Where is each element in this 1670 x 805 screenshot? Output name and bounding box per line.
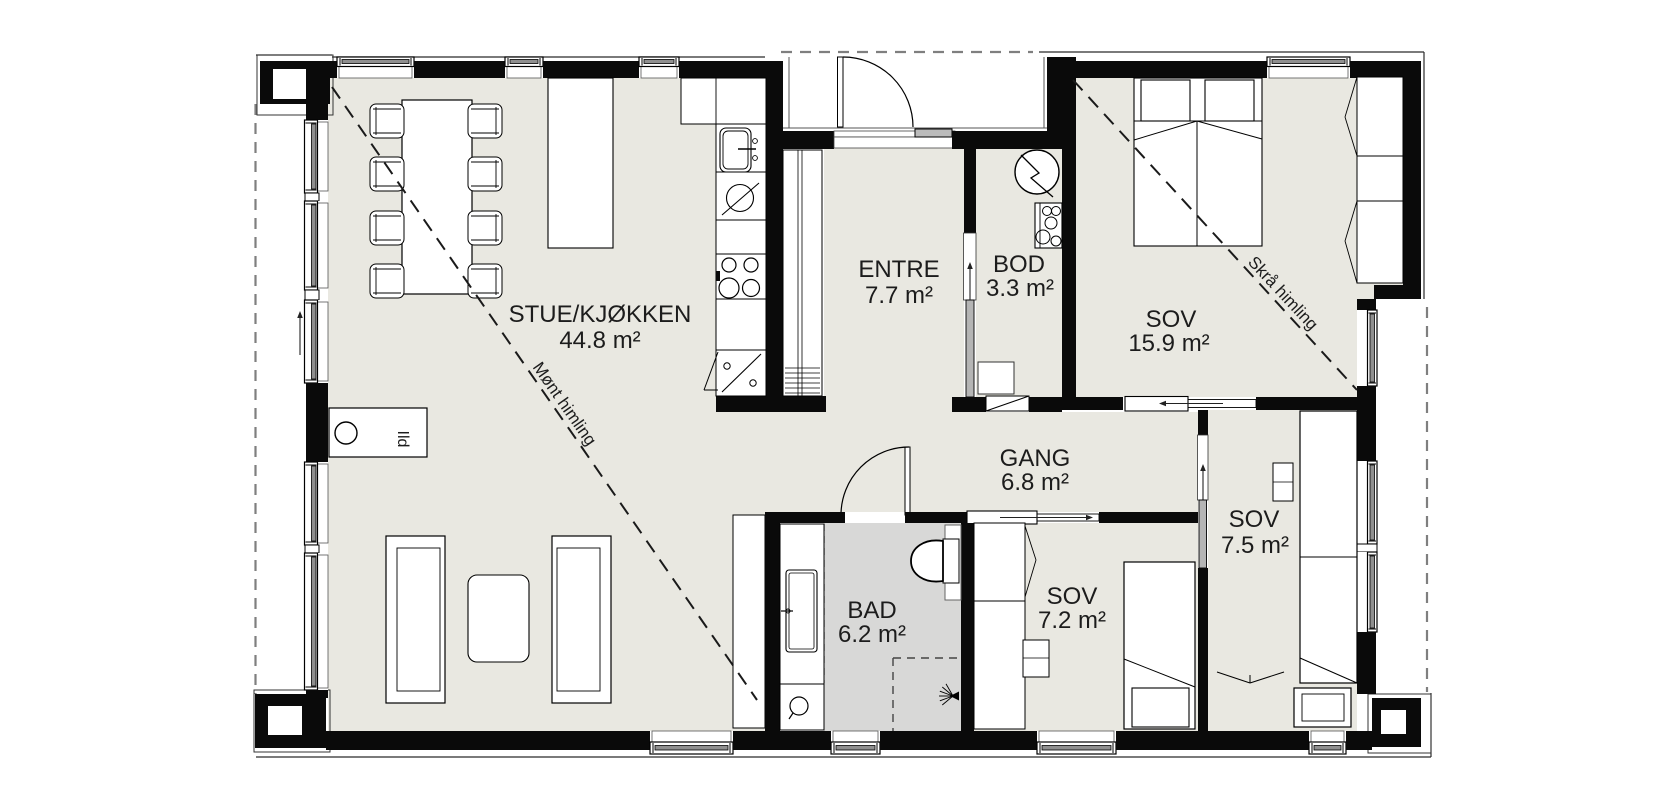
svg-text:Ild: Ild (394, 431, 411, 448)
svg-text:44.8 m²: 44.8 m² (559, 327, 640, 354)
svg-text:7.2 m²: 7.2 m² (1038, 607, 1106, 634)
svg-text:SOV: SOV (1047, 583, 1098, 610)
svg-text:SOV: SOV (1146, 306, 1197, 333)
svg-text:GANG: GANG (1000, 445, 1071, 472)
svg-text:SOV: SOV (1229, 506, 1280, 533)
svg-text:7.5 m²: 7.5 m² (1221, 532, 1289, 559)
svg-text:ENTRE: ENTRE (858, 256, 939, 283)
svg-text:STUE/KJØKKEN: STUE/KJØKKEN (509, 301, 692, 328)
svg-text:3.3 m²: 3.3 m² (986, 275, 1054, 302)
svg-text:BAD: BAD (847, 597, 896, 624)
svg-text:7.7 m²: 7.7 m² (865, 282, 933, 309)
svg-text:BOD: BOD (993, 251, 1045, 278)
svg-text:6.8 m²: 6.8 m² (1001, 469, 1069, 496)
svg-text:15.9 m²: 15.9 m² (1128, 330, 1209, 357)
svg-text:6.2 m²: 6.2 m² (838, 621, 906, 648)
